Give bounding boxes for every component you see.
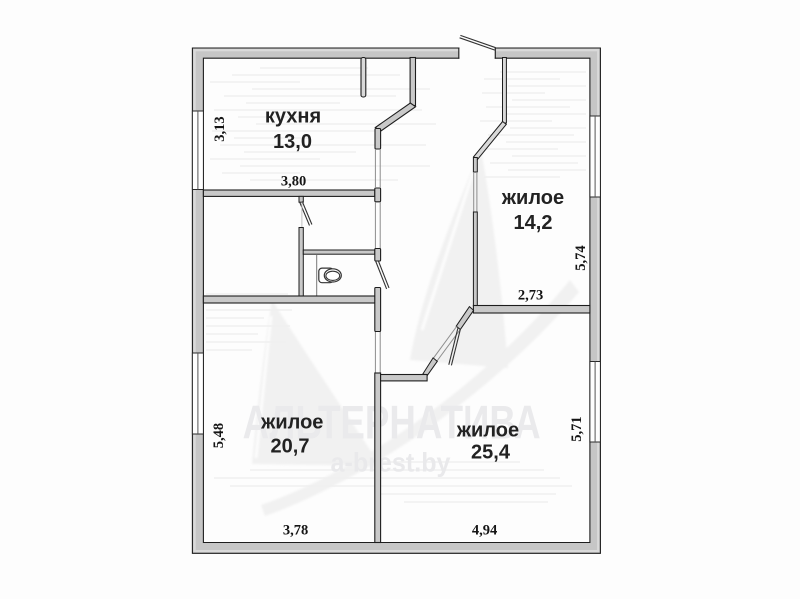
svg-text:2,73: 2,73 <box>518 288 543 304</box>
svg-text:3,13: 3,13 <box>212 116 228 141</box>
svg-text:жилое: жилое <box>260 412 323 434</box>
svg-text:20,7: 20,7 <box>271 436 310 458</box>
svg-text:4,94: 4,94 <box>472 523 497 539</box>
svg-text:14,2: 14,2 <box>514 212 553 234</box>
svg-text:5,71: 5,71 <box>569 416 585 441</box>
svg-text:жилое: жилое <box>501 187 564 209</box>
svg-text:25,4: 25,4 <box>471 442 511 464</box>
svg-text:5,74: 5,74 <box>573 245 589 270</box>
svg-text:13,0: 13,0 <box>273 131 312 153</box>
svg-text:3,80: 3,80 <box>281 174 306 190</box>
svg-text:5,48: 5,48 <box>211 423 227 448</box>
svg-text:3,78: 3,78 <box>283 523 308 539</box>
svg-text:кухня: кухня <box>265 106 321 128</box>
svg-text:жилое: жилое <box>456 420 519 442</box>
svg-text:a-brest.by: a-brest.by <box>331 448 451 478</box>
